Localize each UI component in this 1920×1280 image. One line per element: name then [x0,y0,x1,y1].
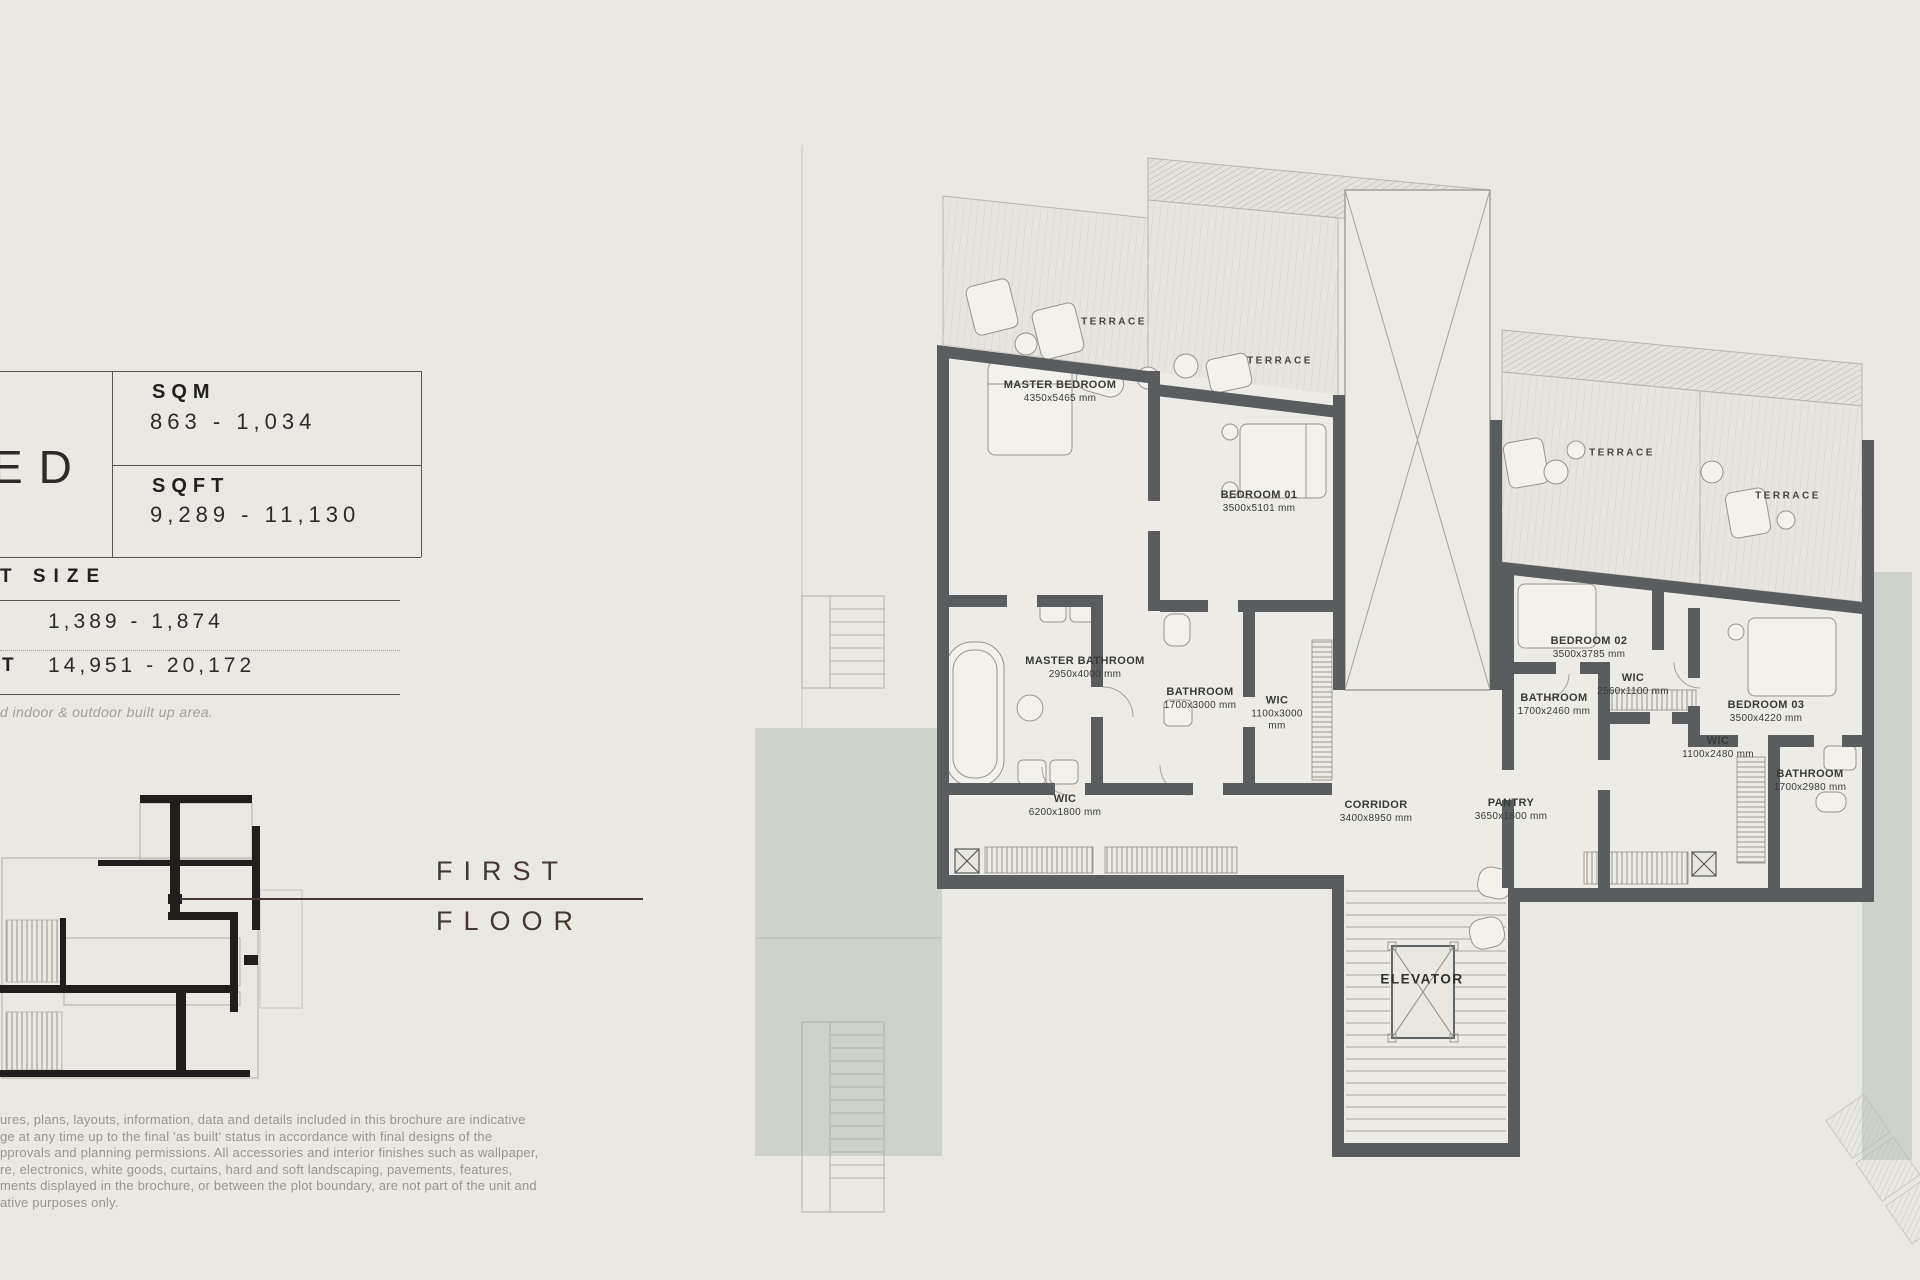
room-label-bathroom-02: BATHROOM 1700x2460 mm [1518,692,1591,718]
panel-line [0,650,400,651]
room-label-bedroom-03: BEDROOM 03 3500x4220 mm [1728,699,1805,725]
sqft-label: SQFT [152,475,229,498]
sqm-label: SQM [152,381,216,404]
disclaimer-line: re, electronics, white goods, curtains, … [0,1162,450,1179]
panel-line [0,371,421,372]
bedroom-count-label: ED [0,440,88,494]
room-label-master-bedroom: MASTER BEDROOM 4350x5465 mm [1004,379,1117,405]
terrace-label-1: TERRACE [1081,317,1147,328]
panel-line [421,371,422,557]
floor-plan-drawing [0,0,1920,1280]
room-label-bedroom-02: BEDROOM 02 3500x3785 mm [1551,635,1628,661]
elevator-label: ELEVATOR [1380,972,1463,987]
terrace-label-3: TERRACE [1589,448,1655,459]
disclaimer-line: pprovals and planning permissions. All a… [0,1145,450,1162]
floor-title-line1: FIRST [436,856,569,887]
room-label-corridor: CORRIDOR 3400x8950 mm [1340,799,1413,825]
brochure-page: { "colors": { "background": "#eae8e2", "… [0,0,1920,1280]
room-label-bathroom-03: BATHROOM 1700x2980 mm [1774,768,1847,794]
disclaimer-line: ures, plans, layouts, information, data … [0,1112,450,1129]
disclaimer: ures, plans, layouts, information, data … [0,1112,450,1212]
elevator-shaft [1388,942,1458,1042]
room-label-wic-01: WIC 1100x3000 mm [1243,695,1311,734]
area-footnote: d indoor & outdoor built up area. [0,704,213,720]
room-label-bathroom-01: BATHROOM 1700x3000 mm [1164,686,1237,712]
room-label-wic-02: WIC 2560x1100 mm [1597,672,1669,698]
terrace-label-2: TERRACE [1247,356,1313,367]
panel-line [112,465,421,466]
plot-sqft-label: T [2,655,18,677]
panel-line [0,557,421,558]
room-label-bedroom-01: BEDROOM 01 3500x5101 mm [1221,489,1298,515]
room-label-wic-03: WIC 1100x2480 mm [1682,735,1754,761]
room-label-master-bathroom: MASTER BATHROOM 2950x4000 mm [1025,655,1144,681]
disclaimer-line: ments displayed in the brochure, or betw… [0,1178,450,1195]
disclaimer-line: ative purposes only. [0,1195,450,1212]
plot-sqm-value: 1,389 - 1,874 [48,610,224,634]
stair-shaft [1345,190,1490,690]
plot-size-header: T SIZE [0,566,107,588]
room-label-pantry: PANTRY 3650x1800 mm [1475,797,1548,823]
sqft-value: 9,289 - 11,130 [150,502,360,528]
panel-line [112,371,113,557]
room-label-wic-master: WIC 6200x1800 mm [1029,793,1102,819]
section-drawing [0,795,302,1078]
plot-sqft-value: 14,951 - 20,172 [48,654,255,678]
disclaimer-line: ge at any time up to the final 'as built… [0,1129,450,1146]
terrace-label-4: TERRACE [1755,491,1821,502]
floor-title-line2: FLOOR [436,906,584,937]
sqm-value: 863 - 1,034 [150,409,316,435]
panel-line [0,694,400,695]
panel-line [0,600,400,601]
